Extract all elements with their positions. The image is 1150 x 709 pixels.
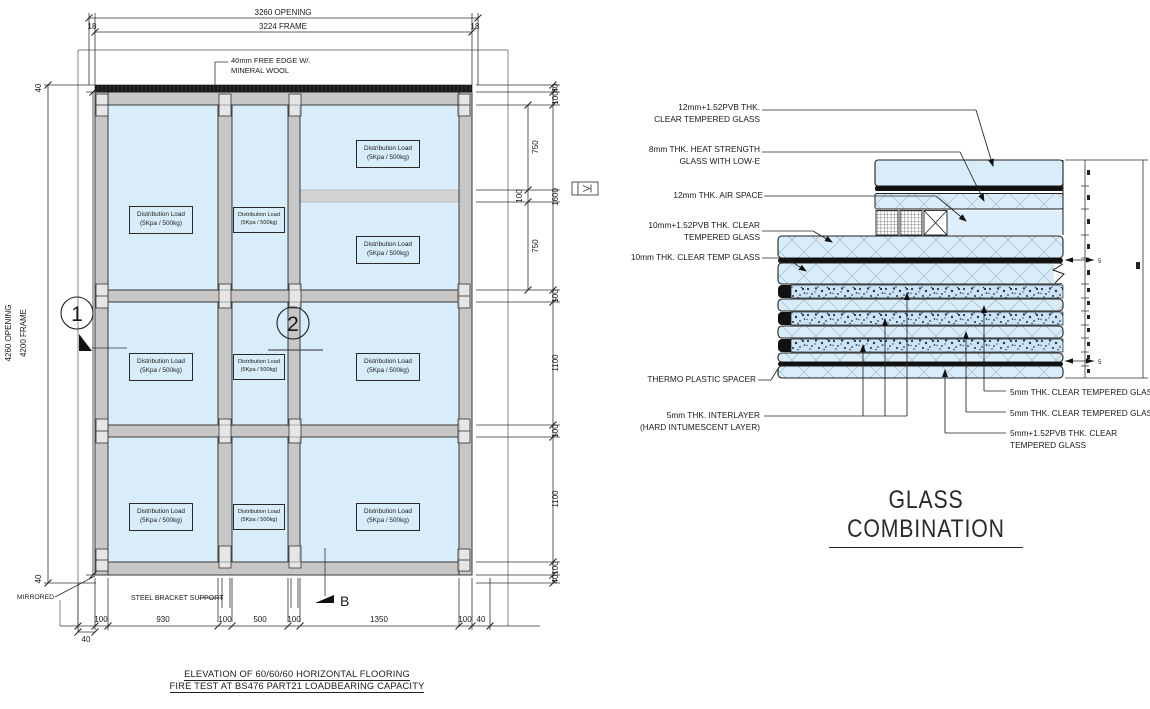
- cad-sheet: 3260 OPENING 3224 FRAME 18 18 4260 OPENI…: [0, 0, 1150, 709]
- dim-right: 100: [551, 91, 560, 105]
- distribution-load-box: Distribution Load(5Kpa / 500kg): [356, 140, 420, 168]
- glass-lower-stack: [778, 236, 1066, 378]
- glass-label-5mm-1: 5mm THK. CLEAR TEMPERED GLASS: [1010, 387, 1150, 399]
- callout-1-flag-icon: [79, 334, 92, 351]
- glass-label-thermo-spacer: THERMO PLASTIC SPACER: [556, 374, 756, 386]
- elevation-drawing: 3260 OPENING 3224 FRAME 18 18 4260 OPENI…: [4, 8, 598, 644]
- dim-right: 1100: [551, 354, 560, 372]
- dim-top-frame: 3224 FRAME: [259, 22, 307, 31]
- mineral-wool-strip: [95, 85, 472, 92]
- mirrored-label: MIRRORED: [6, 593, 54, 603]
- dim-top-opening: 3260 OPENING: [255, 8, 312, 17]
- distribution-load-box: Distribution Load(5Kpa / 500kg): [233, 207, 285, 233]
- dim-bottom: 930: [156, 615, 170, 624]
- dim-left-opening: 4260 OPENING: [4, 305, 13, 362]
- glass-label-12mm-pvb: 12mm+1.52PVB THK.CLEAR TEMPERED GLASS: [560, 102, 760, 125]
- pvb-dim-5-bottom: 5: [1098, 360, 1102, 366]
- dim-bottom: 100: [458, 615, 472, 624]
- elevation-title-line2: FIRE TEST AT BS476 PART21 LOADBEARING CA…: [170, 681, 425, 693]
- dim-left-top-40: 40: [34, 83, 43, 92]
- dim-right: 40: [551, 574, 560, 583]
- distribution-load-box: Distribution Load(5Kpa / 500kg): [356, 353, 420, 381]
- section-b-arrow-icon: [315, 595, 334, 603]
- spacer-x-box-icon: [924, 211, 947, 236]
- right-dimension-lines: [476, 85, 560, 583]
- callout-2-number: 2: [287, 313, 299, 336]
- dim-right-inner: 750: [531, 239, 540, 253]
- free-edge-label: 40mm FREE EDGE W/. MINERAL WOOL: [231, 56, 311, 76]
- dim-right-inner: 100: [515, 189, 524, 203]
- glass-combination-drawing: 5 5: [758, 110, 1148, 433]
- glass-dimension-lines: [1065, 160, 1148, 378]
- glass-label-10mm-temp: 10mm THK. CLEAR TEMP GLASS: [560, 252, 760, 264]
- distribution-load-box: Distribution Load(5Kpa / 500kg): [129, 206, 193, 234]
- dim-right: 100: [551, 424, 560, 438]
- section-b-letter: B: [340, 593, 349, 609]
- distribution-load-box: Distribution Load(5Kpa / 500kg): [233, 504, 285, 530]
- dim-bottom: 100: [218, 615, 232, 624]
- elevation-title: ELEVATION OF 60/60/60 HORIZONTAL FLOORIN…: [147, 669, 447, 693]
- glass-dim-marks: [1087, 170, 1140, 373]
- pvb-dim-5-top: 5: [1098, 259, 1102, 265]
- dim-right: 40: [551, 83, 560, 92]
- dim-right: 1100: [551, 490, 560, 508]
- dim-bottom: 500: [253, 615, 267, 624]
- dim-end-right: 18: [471, 22, 480, 31]
- distribution-load-box: Distribution Load(5Kpa / 500kg): [233, 354, 285, 380]
- glass-label-5mm-pvb: 5mm+1.52PVB THK. CLEARTEMPERED GLASS: [1010, 428, 1117, 451]
- break-mark: [1054, 264, 1066, 283]
- distribution-load-box: Distribution Load(5Kpa / 500kg): [356, 236, 420, 264]
- steel-bracket-label: STEEL BRACKET SUPPORT: [131, 594, 223, 604]
- callout-1-number: 1: [71, 303, 83, 326]
- dim-bottom: 40: [477, 615, 486, 624]
- dim-bottom: 100: [287, 615, 301, 624]
- distribution-load-box: Distribution Load(5Kpa / 500kg): [356, 503, 420, 531]
- distribution-load-box: Distribution Load(5Kpa / 500kg): [129, 353, 193, 381]
- dim-right: 100: [551, 561, 560, 575]
- dim-bottom: 100: [94, 615, 108, 624]
- dim-right-inner: 750: [531, 140, 540, 154]
- load-spreader-bar: [300, 190, 459, 202]
- dim-right: 100: [551, 289, 560, 303]
- dim-bottom-outer-40: 40: [82, 635, 91, 644]
- dim-end-left: 18: [88, 22, 97, 31]
- glass-label-5mm-2: 5mm THK. CLEAR TEMPERED GLASS: [1010, 408, 1150, 420]
- glass-label-10mm-pvb: 10mm+1.52PVB THK. CLEARTEMPERED GLASS: [560, 220, 760, 243]
- glass-panels: [108, 105, 459, 562]
- left-dimension-lines: [44, 85, 96, 583]
- glass-combination-title: GLASS COMBINATION: [829, 486, 1023, 548]
- dim-right: 1600: [551, 188, 560, 206]
- glass-label-air-space: 12mm THK. AIR SPACE: [560, 190, 763, 202]
- glass-label-8mm-lowe: 8mm THK. HEAT STRENGTHGLASS WITH LOW-E: [560, 144, 760, 167]
- pvb-dim-callouts: 5 5: [1065, 257, 1102, 366]
- dim-bottom: 1350: [370, 615, 388, 624]
- elevation-title-line1: ELEVATION OF 60/60/60 HORIZONTAL FLOORIN…: [184, 669, 410, 681]
- dim-left-bottom-40: 40: [34, 574, 43, 583]
- glass-label-interlayer: 5mm THK. INTERLAYER(HARD INTUMESCENT LAY…: [560, 410, 760, 433]
- dim-left-frame: 4200 FRAME: [19, 309, 28, 357]
- mirrored-leader: [55, 576, 95, 597]
- distribution-load-box: Distribution Load(5Kpa / 500kg): [129, 503, 193, 531]
- free-edge-leader: [215, 62, 228, 85]
